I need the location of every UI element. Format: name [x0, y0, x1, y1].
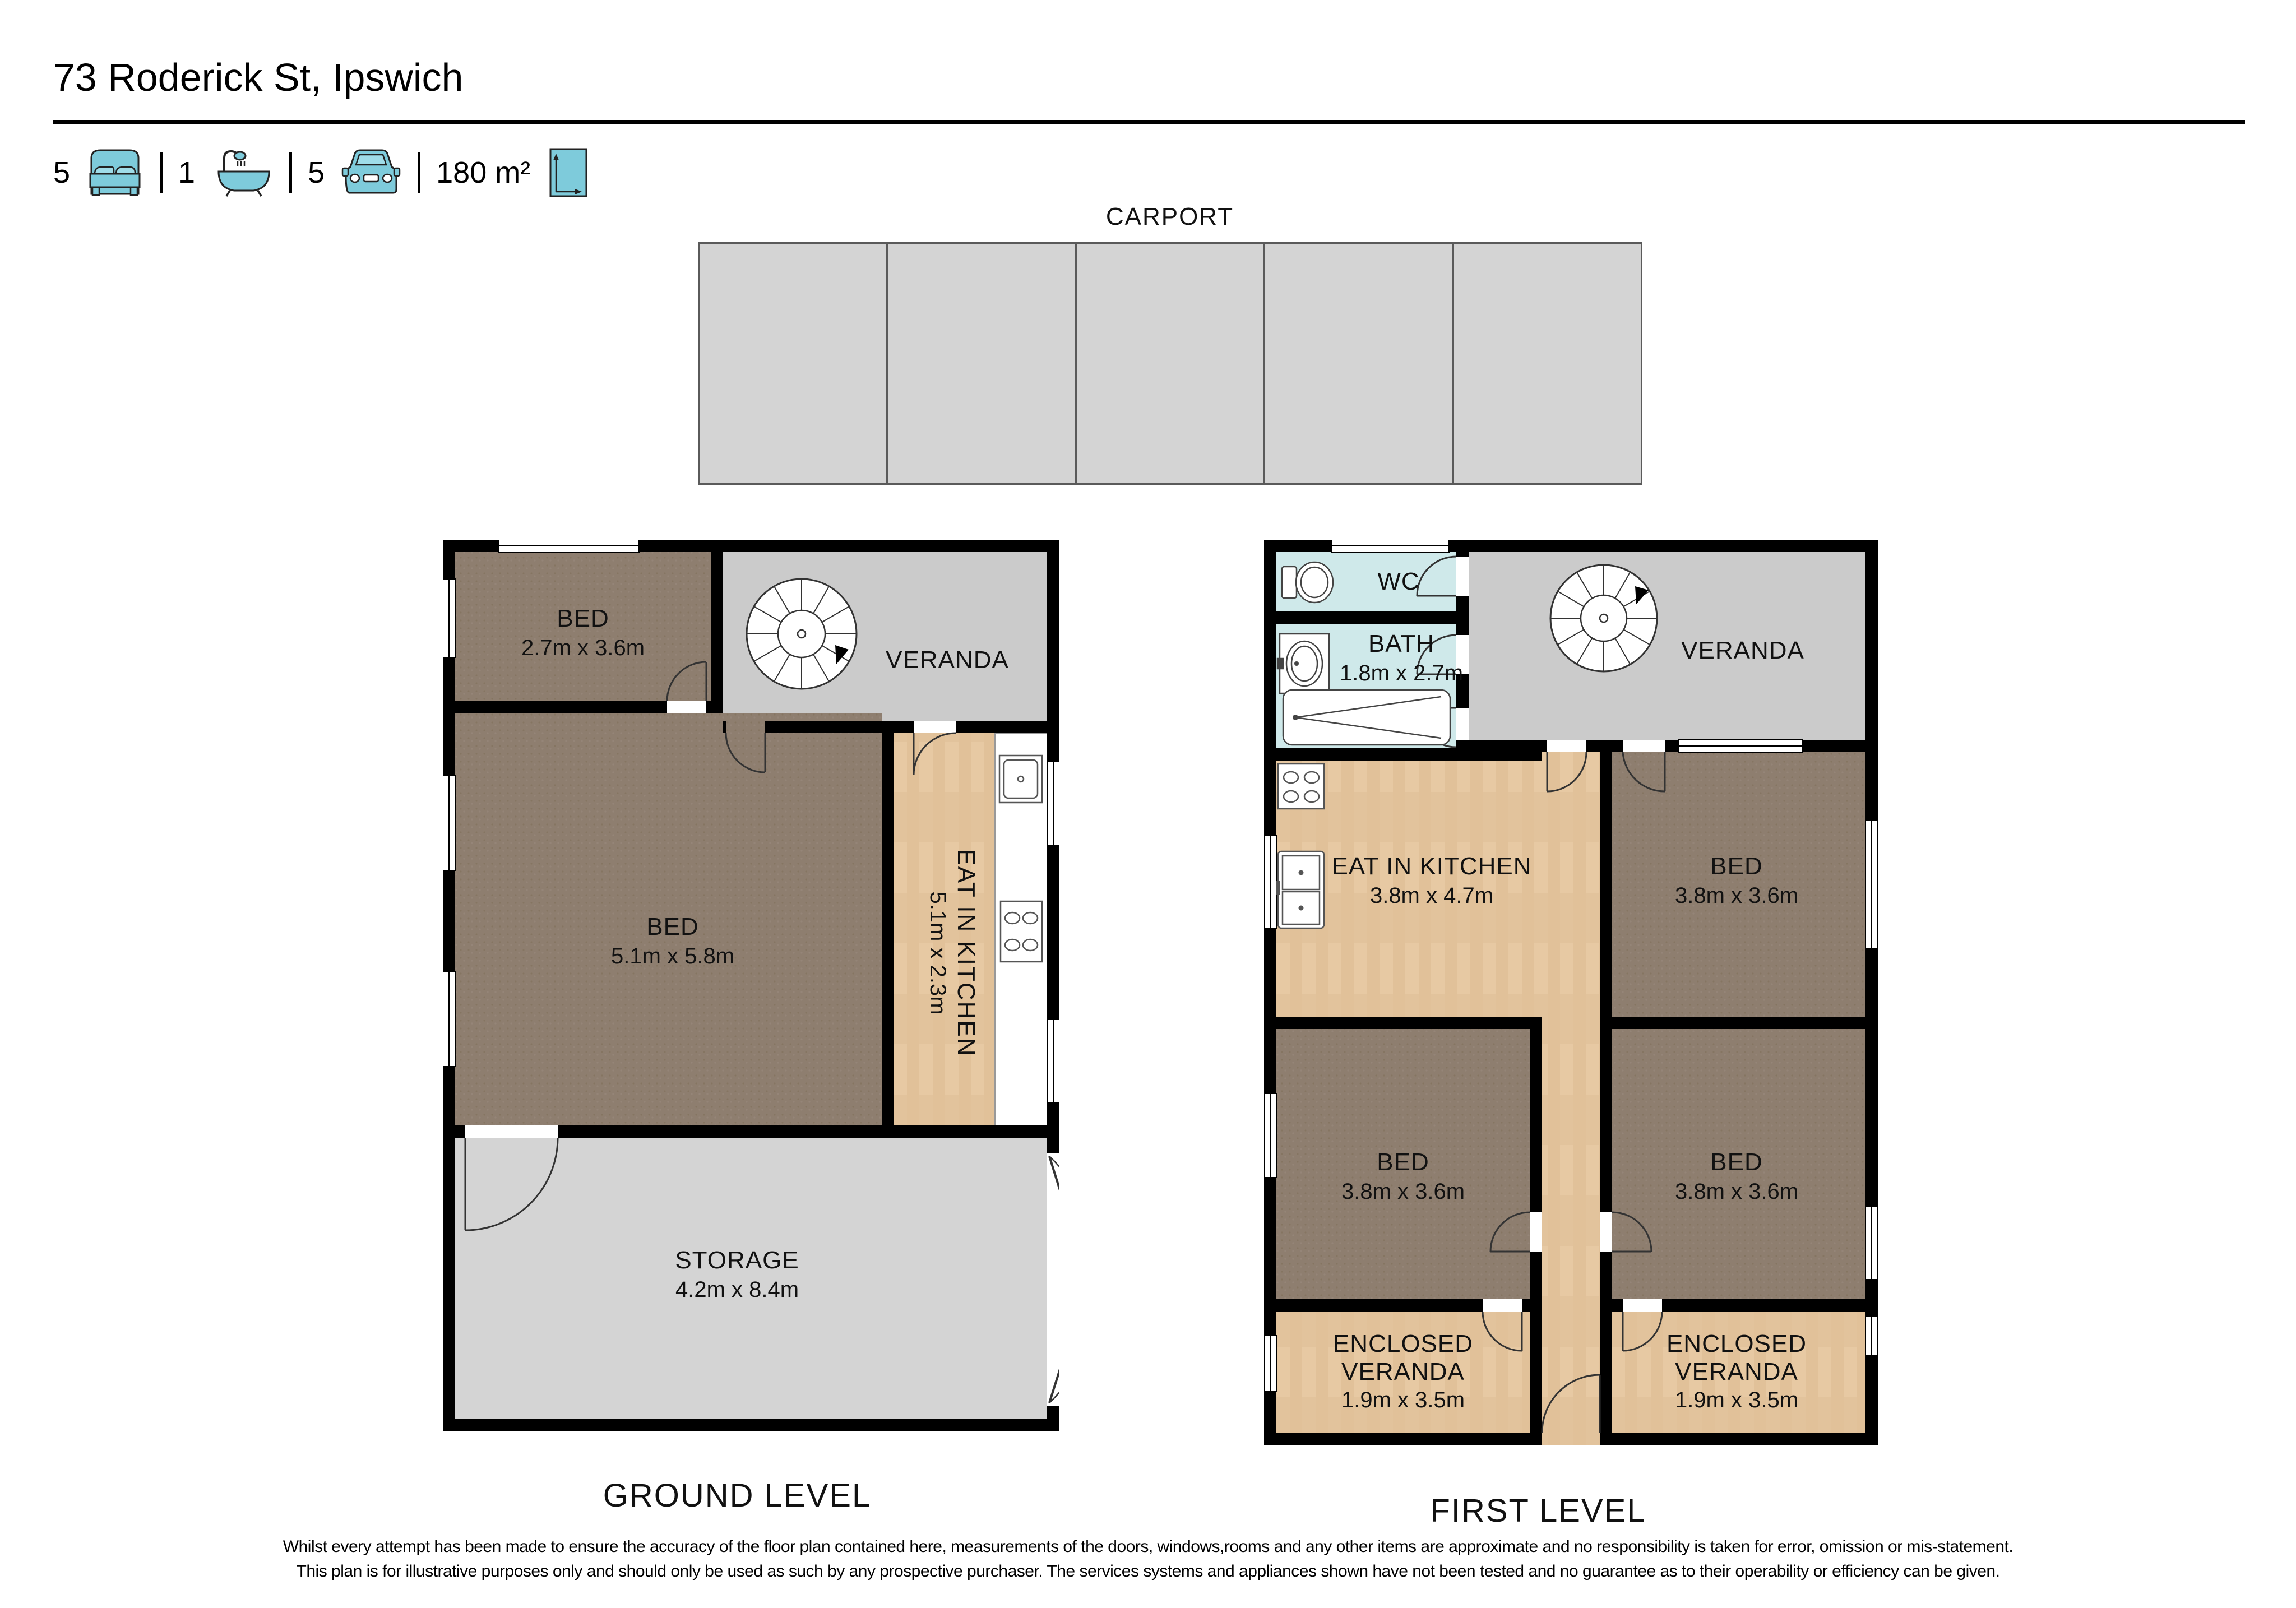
- carport-bay: [1454, 244, 1641, 483]
- ground-french-doors: [1049, 1156, 1059, 1403]
- property-stats: 5 1 5: [53, 145, 590, 201]
- first-ev-left-label: ENCLOSED VERANDA 1.9m x 3.5m: [1308, 1330, 1498, 1414]
- first-bath-label: BATH 1.8m x 2.7m: [1340, 629, 1463, 688]
- disclaimer: Whilst every attempt has been made to en…: [0, 1535, 2296, 1584]
- cars-count: 5: [308, 155, 325, 190]
- first-spiral-stair: [1550, 565, 1657, 671]
- disclaimer-line2: This plan is for illustrative purposes o…: [0, 1559, 2296, 1584]
- first-hallway-floor: [1542, 752, 1600, 1445]
- first-kitchen-label: EAT IN KITCHEN 3.8m x 4.7m: [1331, 852, 1531, 910]
- ground-level-label: GROUND LEVEL: [603, 1477, 871, 1514]
- ground-bed-small-label: BED 2.7m x 3.6m: [521, 604, 645, 662]
- first-kitchen-cooktop: [1278, 764, 1324, 809]
- carport-bay: [700, 244, 888, 483]
- first-level-label: FIRST LEVEL: [1430, 1492, 1646, 1530]
- stats-divider: [418, 152, 420, 193]
- ground-veranda-label: VERANDA: [886, 646, 1009, 675]
- area-value: 180 m²: [436, 155, 530, 190]
- disclaimer-line1: Whilst every attempt has been made to en…: [0, 1535, 2296, 1559]
- stats-divider: [160, 152, 163, 193]
- carport-bay: [1077, 244, 1265, 483]
- title-underline: [53, 120, 2245, 124]
- first-bed-mid-left-label: BED 3.8m x 3.6m: [1341, 1148, 1465, 1206]
- carport-bay: [1265, 244, 1453, 483]
- first-wc-label: WC: [1377, 567, 1419, 596]
- beds-count: 5: [53, 155, 70, 190]
- ground-kitchen-label: EAT IN KITCHEN 5.1m x 2.3m: [924, 849, 980, 1056]
- first-kitchen-sink: [1276, 851, 1324, 928]
- first-toilet: [1282, 562, 1333, 603]
- ground-kitchen-cooktop: [1001, 901, 1042, 962]
- first-ev-right-label: ENCLOSED VERANDA 1.9m x 3.5m: [1641, 1330, 1832, 1414]
- page-title: 73 Roderick St, Ipswich: [53, 55, 463, 100]
- first-bath-sink: [1277, 634, 1329, 693]
- first-veranda-label: VERANDA: [1681, 636, 1804, 665]
- first-bed-top-right-label: BED 3.8m x 3.6m: [1675, 852, 1798, 910]
- car-icon: [340, 148, 402, 197]
- area-icon: [546, 147, 590, 198]
- first-shower: [1283, 690, 1450, 745]
- stats-divider: [289, 152, 292, 193]
- ground-storage-label: STORAGE 4.2m x 8.4m: [675, 1246, 799, 1304]
- ground-spiral-stair: [747, 579, 857, 689]
- bed-icon: [86, 148, 144, 197]
- bath-icon: [211, 147, 274, 198]
- carport-area: [698, 242, 1642, 485]
- carport-bay: [888, 244, 1076, 483]
- first-veranda-floor: [1469, 552, 1865, 740]
- first-bed-mid-right-label: BED 3.8m x 3.6m: [1675, 1148, 1798, 1206]
- ground-bed-large-label: BED 5.1m x 5.8m: [611, 912, 734, 971]
- baths-count: 1: [178, 155, 195, 190]
- carport-label: CARPORT: [1106, 203, 1234, 231]
- ground-kitchen-sink: [999, 756, 1042, 803]
